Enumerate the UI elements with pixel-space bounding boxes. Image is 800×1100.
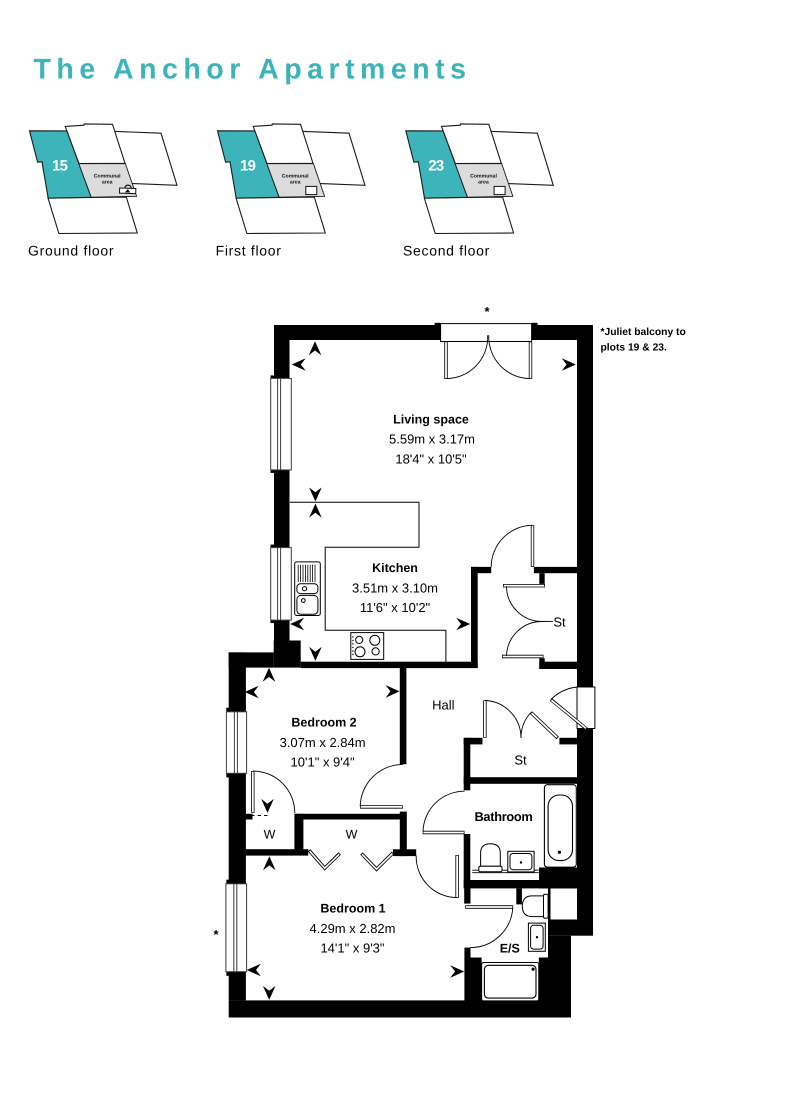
svg-text:5.59m x 3.17m: 5.59m x 3.17m — [389, 432, 475, 447]
svg-text:W: W — [264, 828, 276, 842]
svg-text:Second floor: Second floor — [403, 243, 490, 259]
svg-text:Bathroom: Bathroom — [474, 809, 532, 824]
svg-text:3.51m x 3.10m: 3.51m x 3.10m — [352, 581, 438, 596]
svg-text:W: W — [346, 828, 358, 842]
svg-text:10'1" x 9'4": 10'1" x 9'4" — [291, 755, 355, 770]
svg-text:23: 23 — [428, 157, 444, 174]
svg-text:Living space: Living space — [393, 413, 469, 427]
svg-text:*Juliet balcony to: *Juliet balcony to — [601, 327, 686, 338]
svg-text:The Anchor Apartments: The Anchor Apartments — [34, 53, 472, 85]
svg-text:15: 15 — [52, 157, 68, 174]
svg-text:Bedroom 1: Bedroom 1 — [320, 902, 385, 916]
svg-text:19: 19 — [240, 157, 256, 174]
svg-text:14'1" x 9'3": 14'1" x 9'3" — [320, 941, 384, 956]
svg-text:4.29m x 2.82m: 4.29m x 2.82m — [310, 921, 396, 936]
svg-text:E/S: E/S — [500, 942, 520, 956]
svg-text:Bedroom 2: Bedroom 2 — [291, 716, 356, 730]
svg-text:St: St — [553, 615, 566, 630]
svg-text:Ground floor: Ground floor — [28, 243, 114, 259]
svg-text:Kitchen: Kitchen — [372, 561, 418, 575]
svg-text:11'6" x 10'2": 11'6" x 10'2" — [360, 600, 431, 615]
svg-text:First floor: First floor — [216, 243, 282, 259]
svg-text:18'4" x 10'5": 18'4" x 10'5" — [395, 452, 467, 467]
svg-text:St: St — [514, 752, 527, 767]
svg-text:Hall: Hall — [432, 697, 455, 712]
svg-text:3.07m x 2.84m: 3.07m x 2.84m — [280, 735, 366, 750]
svg-text:plots 19 & 23.: plots 19 & 23. — [601, 342, 668, 353]
